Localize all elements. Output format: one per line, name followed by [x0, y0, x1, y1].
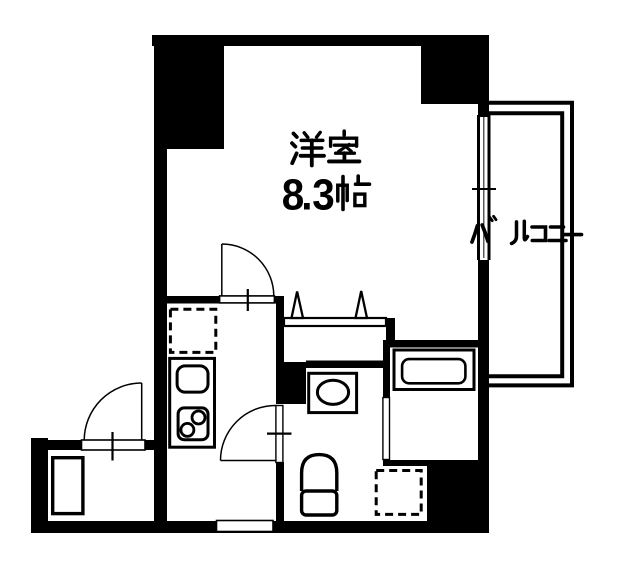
svg-text:.: . [301, 170, 312, 219]
svg-text:3: 3 [312, 170, 334, 219]
